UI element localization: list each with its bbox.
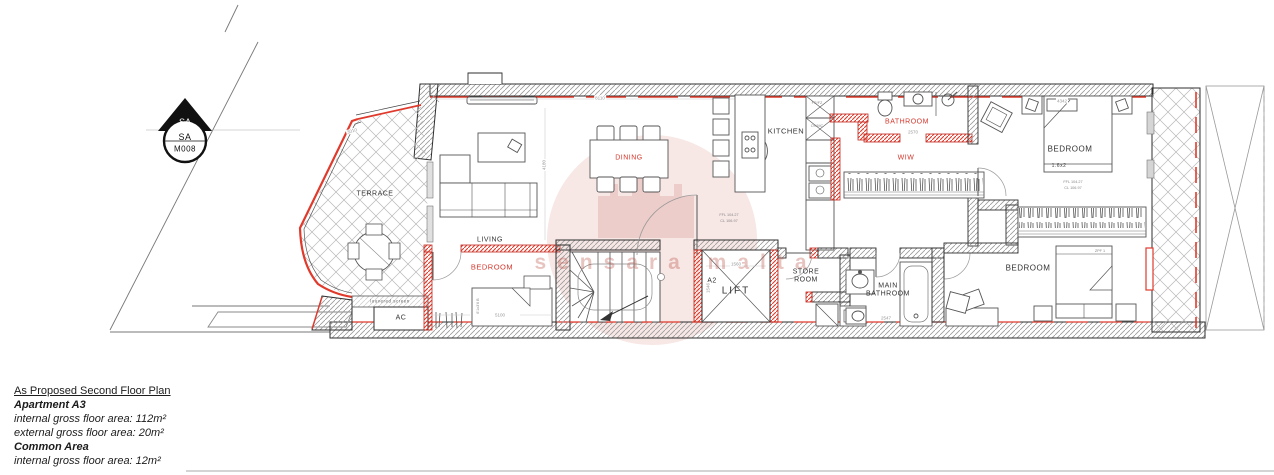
room-label-ac: AC bbox=[396, 315, 407, 322]
dimension-living-depth: 4180 bbox=[542, 159, 547, 171]
apartment-heading: Apartment A3 bbox=[14, 398, 171, 412]
plan-title: As Proposed Second Floor Plan bbox=[14, 384, 171, 398]
bed-size-front-label: 6'1x3'6 B bbox=[476, 298, 480, 313]
dimension-bedroom-front: 5100 bbox=[494, 313, 506, 318]
dimension-lift-width: 1560 bbox=[730, 262, 742, 267]
cl-label-bedroom: CL 106.97 bbox=[1064, 186, 1081, 190]
bathroom-fixtures bbox=[878, 86, 978, 246]
dimension-bathroom: 2570 bbox=[907, 130, 919, 135]
dimension-lift-depth: 1546 bbox=[706, 282, 711, 294]
apartment-internal-area: internal gross floor area: 112m² bbox=[14, 412, 171, 426]
room-label-living: LIVING bbox=[477, 237, 503, 244]
room-label-bedroom-back: BEDROOM bbox=[1006, 264, 1051, 273]
room-label-bathroom: BATHROOM bbox=[885, 119, 929, 126]
room-label-main-bathroom: MAIN BATHROOM bbox=[856, 283, 920, 300]
wiw-wardrobe bbox=[844, 172, 984, 198]
floor-plan-drawing bbox=[0, 0, 1274, 475]
fridge-freezer-label: FR/FZ bbox=[812, 101, 823, 105]
site-boundary-lines bbox=[110, 5, 352, 332]
dimension-main-bathroom: 2547 bbox=[880, 316, 892, 321]
oven-microwave-label: OV/MC bbox=[811, 124, 823, 128]
living-furniture bbox=[440, 97, 545, 240]
room-label-dining: DINING bbox=[615, 155, 643, 162]
room-label-terrace: TERRACE bbox=[357, 191, 394, 198]
section-marker-code: SA bbox=[179, 117, 191, 127]
section-marker-number: M008 bbox=[174, 145, 196, 154]
ffl-label-bedroom: FFL 104.27 bbox=[1063, 180, 1082, 184]
watermark-text: sensara malta bbox=[534, 251, 817, 275]
room-label-bedroom-master: BEDROOM bbox=[1048, 145, 1093, 154]
dimension-living-dining: 8110 bbox=[594, 96, 606, 101]
room-label-store-room: STORE ROOM bbox=[783, 269, 829, 286]
room-label-bedroom-front: BEDROOM bbox=[471, 263, 513, 272]
room-label-wiw: WIW bbox=[898, 155, 915, 162]
common-area-heading: Common Area bbox=[14, 440, 171, 454]
apartment-external-area: external gross floor area: 20m² bbox=[14, 426, 171, 440]
cl-label-kitchen: CL 106.97 bbox=[720, 219, 737, 223]
section-marker-code2: SA bbox=[178, 132, 191, 142]
common-internal-area: internal gross floor area: 12m² bbox=[14, 454, 171, 468]
bed-size-master-label: 1.6x2 bbox=[1052, 163, 1067, 169]
floor-plan-sheet: sensara malta SA SA M008 TERRACE LIVING … bbox=[0, 0, 1274, 475]
louvered-screen-label: louvered screen bbox=[370, 299, 410, 304]
bed-tag-label: ZPF 1 bbox=[1095, 249, 1105, 253]
terrace-area bbox=[300, 101, 433, 330]
title-block: As Proposed Second Floor Plan Apartment … bbox=[14, 384, 171, 468]
dimension-bedroom-master: 4342 bbox=[1056, 99, 1068, 104]
room-label-lift: LIFT bbox=[722, 286, 751, 297]
ffl-label-kitchen: FFL 104.27 bbox=[719, 213, 738, 217]
room-label-kitchen: KITCHEN bbox=[768, 127, 804, 136]
